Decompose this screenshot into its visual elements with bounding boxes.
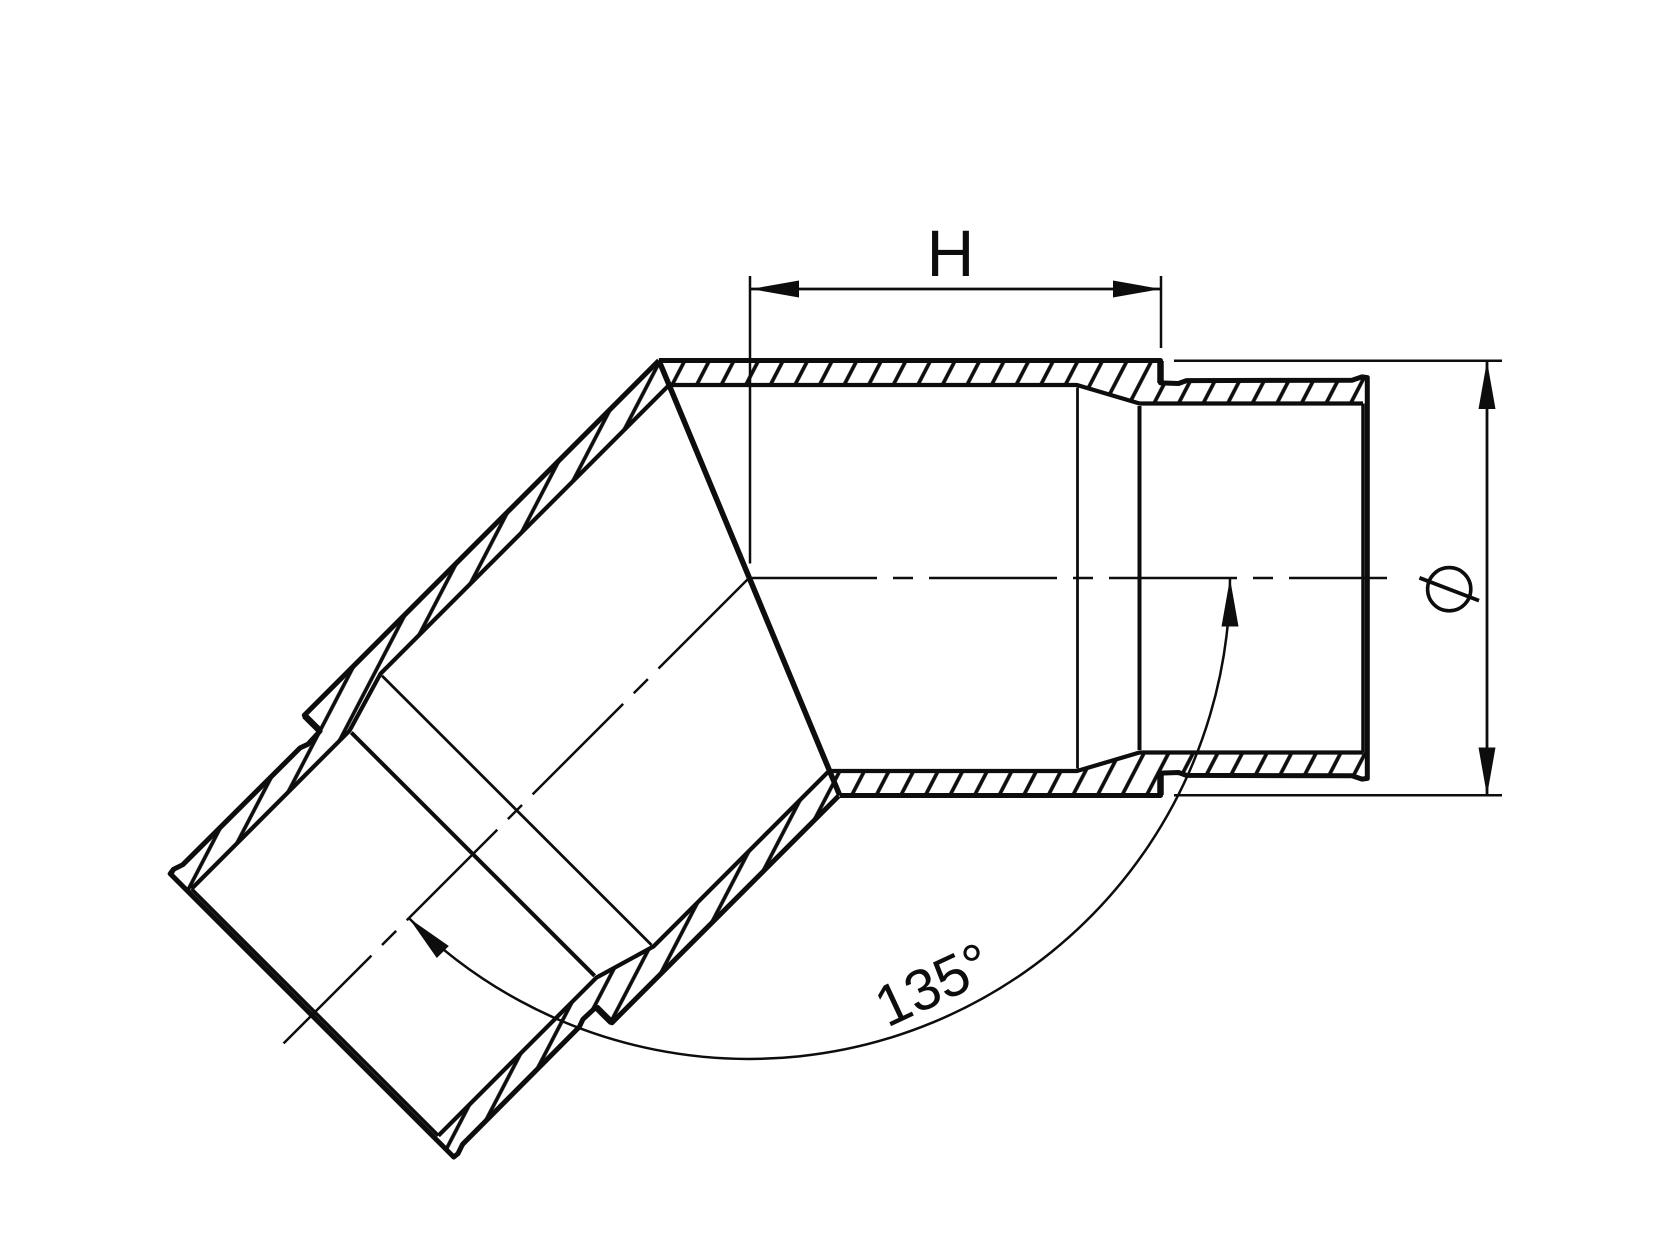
svg-text:H: H: [927, 216, 975, 290]
